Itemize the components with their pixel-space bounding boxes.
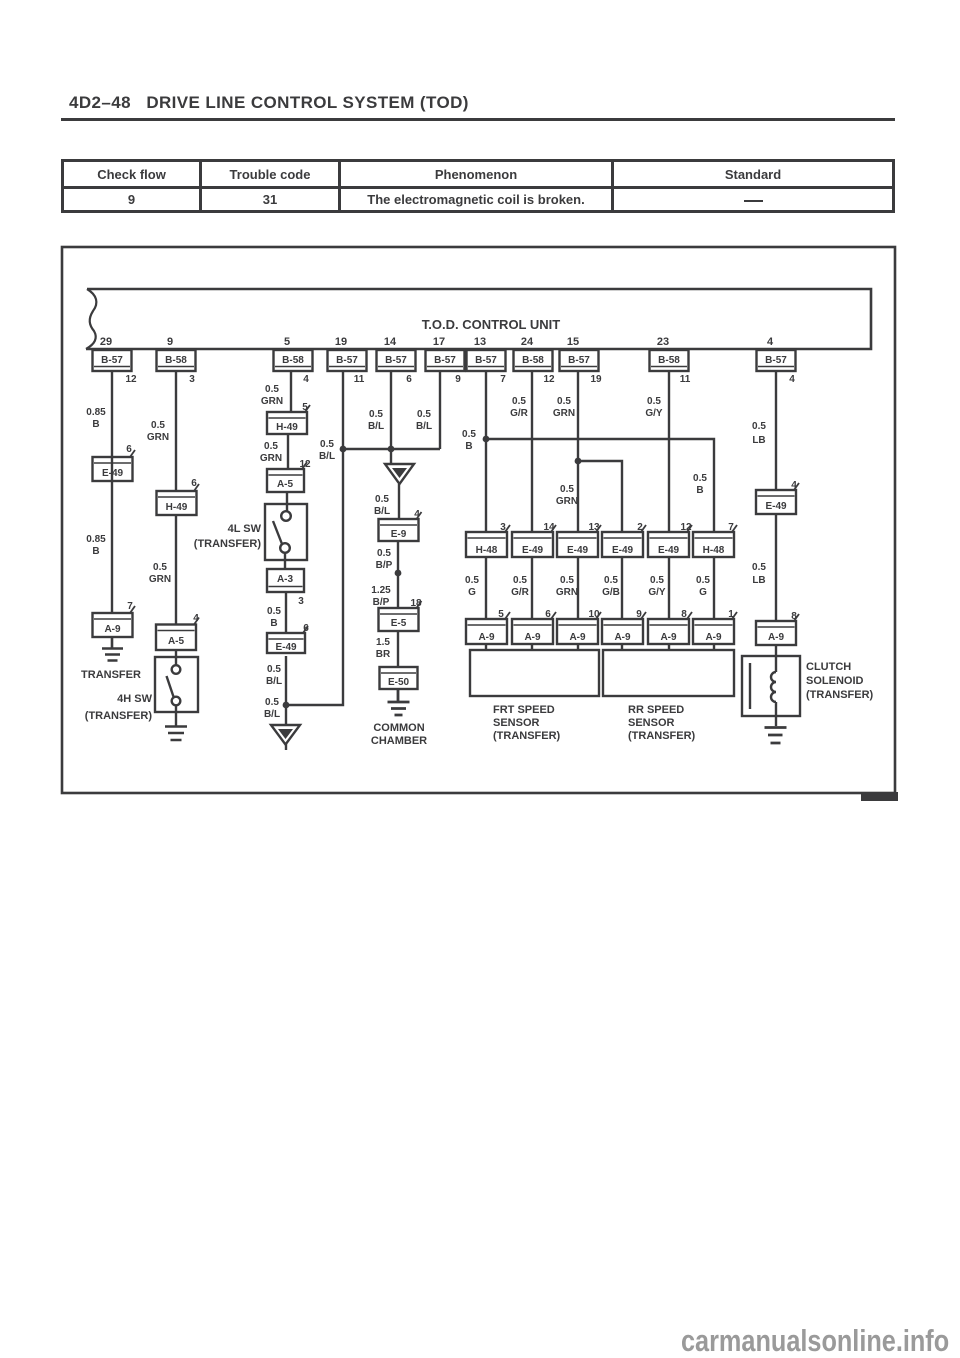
svg-text:0.5B/L: 0.5B/L bbox=[368, 409, 384, 432]
svg-text:7: 7 bbox=[728, 522, 734, 533]
svg-text:E-5: E-5 bbox=[391, 618, 407, 629]
svg-text:A-9: A-9 bbox=[660, 632, 677, 643]
svg-text:0.5B/L: 0.5B/L bbox=[416, 409, 432, 432]
svg-text:0.5GRN: 0.5GRN bbox=[556, 575, 578, 598]
svg-text:29: 29 bbox=[100, 336, 112, 348]
svg-text:E-9: E-9 bbox=[391, 529, 407, 540]
svg-text:9: 9 bbox=[455, 374, 461, 385]
svg-text:B-57: B-57 bbox=[336, 355, 358, 366]
svg-text:0.5B: 0.5B bbox=[693, 473, 707, 496]
svg-text:4: 4 bbox=[193, 613, 199, 624]
svg-text:E-49: E-49 bbox=[567, 545, 589, 556]
svg-text:23: 23 bbox=[657, 336, 669, 348]
svg-text:6: 6 bbox=[303, 623, 309, 634]
svg-text:B-58: B-58 bbox=[658, 355, 680, 366]
svg-text:0.5B: 0.5B bbox=[267, 606, 281, 629]
svg-text:0.85B: 0.85B bbox=[86, 407, 106, 430]
svg-text:0.5B/L: 0.5B/L bbox=[319, 439, 335, 462]
svg-text:FRT SPEEDSENSOR(TRANSFER): FRT SPEEDSENSOR(TRANSFER) bbox=[493, 704, 561, 742]
svg-text:0.5B: 0.5B bbox=[462, 429, 476, 452]
svg-text:12: 12 bbox=[543, 374, 555, 385]
svg-text:11: 11 bbox=[680, 374, 691, 385]
svg-text:3: 3 bbox=[298, 596, 304, 607]
svg-text:0.5G/B: 0.5G/B bbox=[602, 575, 620, 598]
svg-text:4L SW(TRANSFER): 4L SW(TRANSFER) bbox=[194, 523, 262, 550]
svg-text:T.O.D. CONTROL UNIT: T.O.D. CONTROL UNIT bbox=[422, 317, 560, 332]
svg-text:3: 3 bbox=[500, 522, 506, 533]
svg-text:0.5LB: 0.5LB bbox=[752, 421, 766, 446]
svg-text:4: 4 bbox=[789, 374, 795, 385]
svg-text:2: 2 bbox=[637, 522, 643, 533]
svg-text:14: 14 bbox=[384, 336, 397, 348]
svg-text:B-57: B-57 bbox=[568, 355, 590, 366]
svg-text:A-9: A-9 bbox=[569, 632, 586, 643]
svg-text:4: 4 bbox=[791, 480, 797, 491]
svg-text:6: 6 bbox=[126, 444, 132, 455]
svg-text:24: 24 bbox=[521, 336, 534, 348]
svg-text:0.5GRN: 0.5GRN bbox=[149, 562, 171, 585]
svg-text:0.5GRN: 0.5GRN bbox=[553, 396, 575, 419]
svg-text:A-5: A-5 bbox=[277, 479, 294, 490]
svg-text:19: 19 bbox=[590, 374, 602, 385]
svg-text:E-49: E-49 bbox=[102, 468, 124, 479]
svg-text:12: 12 bbox=[299, 459, 311, 470]
svg-text:6: 6 bbox=[545, 609, 551, 620]
svg-text:0.5GRN: 0.5GRN bbox=[260, 441, 282, 464]
svg-text:9: 9 bbox=[167, 336, 173, 348]
svg-text:12: 12 bbox=[680, 522, 692, 533]
svg-text:0.5G/R: 0.5G/R bbox=[511, 575, 530, 598]
svg-text:E-49: E-49 bbox=[612, 545, 634, 556]
svg-text:4: 4 bbox=[414, 509, 420, 520]
svg-text:6: 6 bbox=[406, 374, 412, 385]
svg-text:H-49: H-49 bbox=[276, 422, 298, 433]
svg-text:1.25B/P: 1.25B/P bbox=[371, 585, 391, 608]
svg-text:A-9: A-9 bbox=[524, 632, 541, 643]
svg-text:A-9: A-9 bbox=[768, 632, 785, 643]
svg-text:8: 8 bbox=[791, 611, 797, 622]
svg-text:A-9: A-9 bbox=[705, 632, 722, 643]
svg-text:COMMONCHAMBER: COMMONCHAMBER bbox=[371, 722, 427, 747]
svg-text:11: 11 bbox=[354, 374, 365, 385]
svg-text:E-49: E-49 bbox=[765, 501, 787, 512]
svg-text:3: 3 bbox=[189, 374, 195, 385]
svg-text:B-58: B-58 bbox=[282, 355, 304, 366]
svg-text:4: 4 bbox=[303, 374, 309, 385]
svg-text:4: 4 bbox=[767, 336, 774, 348]
svg-text:9: 9 bbox=[636, 609, 642, 620]
svg-text:RR SPEEDSENSOR(TRANSFER): RR SPEEDSENSOR(TRANSFER) bbox=[628, 704, 696, 742]
svg-text:0.5B/L: 0.5B/L bbox=[264, 697, 280, 720]
svg-text:H-49: H-49 bbox=[166, 502, 188, 513]
svg-text:0.5GRN: 0.5GRN bbox=[147, 420, 169, 443]
svg-text:0.5LB: 0.5LB bbox=[752, 562, 766, 586]
svg-text:7: 7 bbox=[500, 374, 506, 385]
svg-text:8: 8 bbox=[681, 609, 687, 620]
svg-text:E-49: E-49 bbox=[658, 545, 680, 556]
svg-text:17: 17 bbox=[433, 336, 445, 348]
svg-text:B-57: B-57 bbox=[385, 355, 407, 366]
svg-text:TRANSFER: TRANSFER bbox=[81, 669, 141, 681]
svg-text:5: 5 bbox=[498, 609, 504, 620]
svg-text:0.5B/L: 0.5B/L bbox=[266, 664, 282, 687]
svg-text:10: 10 bbox=[588, 609, 600, 620]
svg-text:14: 14 bbox=[543, 522, 555, 533]
svg-text:B-58: B-58 bbox=[165, 355, 187, 366]
svg-text:1.5BR: 1.5BR bbox=[376, 637, 391, 660]
svg-text:12: 12 bbox=[125, 374, 137, 385]
svg-text:CLUTCHSOLENOID(TRANSFER): CLUTCHSOLENOID(TRANSFER) bbox=[806, 661, 874, 701]
svg-text:0.85B: 0.85B bbox=[86, 534, 106, 557]
svg-text:H-48: H-48 bbox=[476, 545, 498, 556]
svg-text:5: 5 bbox=[302, 402, 308, 413]
svg-text:B-57: B-57 bbox=[765, 355, 787, 366]
svg-text:A-9: A-9 bbox=[478, 632, 495, 643]
svg-text:13: 13 bbox=[474, 336, 486, 348]
svg-text:A-9: A-9 bbox=[614, 632, 631, 643]
svg-text:B-57: B-57 bbox=[101, 355, 123, 366]
svg-text:0.5B/L: 0.5B/L bbox=[374, 494, 390, 517]
svg-text:E-50: E-50 bbox=[388, 677, 410, 688]
svg-text:4H SW(TRANSFER): 4H SW(TRANSFER) bbox=[85, 693, 153, 722]
svg-text:0.5B/P: 0.5B/P bbox=[376, 548, 393, 571]
svg-text:H-48: H-48 bbox=[703, 545, 725, 556]
svg-text:E-49: E-49 bbox=[275, 642, 297, 653]
svg-text:18: 18 bbox=[410, 598, 422, 609]
svg-text:0.5GRN: 0.5GRN bbox=[261, 384, 283, 407]
svg-text:A-5: A-5 bbox=[168, 636, 185, 647]
svg-text:0.5G/Y: 0.5G/Y bbox=[645, 396, 663, 419]
svg-text:5: 5 bbox=[284, 336, 290, 348]
svg-text:0.5G: 0.5G bbox=[465, 575, 479, 598]
svg-text:A-3: A-3 bbox=[277, 574, 294, 585]
svg-text:0.5G: 0.5G bbox=[696, 575, 710, 598]
svg-text:B-57: B-57 bbox=[475, 355, 497, 366]
svg-text:1: 1 bbox=[728, 609, 734, 620]
svg-text:0.5G/Y: 0.5G/Y bbox=[648, 575, 666, 598]
svg-text:B-58: B-58 bbox=[522, 355, 544, 366]
svg-text:13: 13 bbox=[588, 522, 600, 533]
svg-text:7: 7 bbox=[127, 601, 133, 612]
svg-text:0.5GRN: 0.5GRN bbox=[556, 484, 578, 507]
svg-text:0.5G/R: 0.5G/R bbox=[510, 396, 529, 419]
svg-text:E-49: E-49 bbox=[522, 545, 544, 556]
svg-text:A-9: A-9 bbox=[104, 624, 121, 635]
svg-text:19: 19 bbox=[335, 336, 347, 348]
svg-text:6: 6 bbox=[191, 478, 197, 489]
svg-text:B-57: B-57 bbox=[434, 355, 456, 366]
svg-text:15: 15 bbox=[567, 336, 579, 348]
